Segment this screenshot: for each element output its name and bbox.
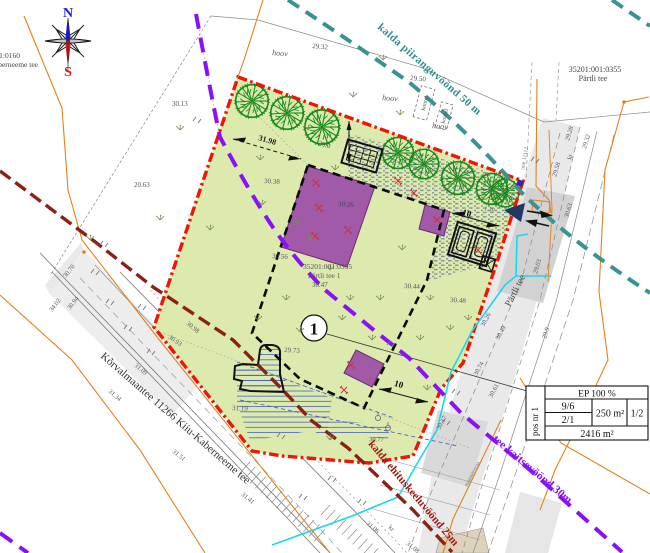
svg-text:29.32: 29.32	[312, 42, 329, 51]
svg-text:pos nr 1: pos nr 1	[530, 407, 540, 436]
svg-text:30.44: 30.44	[404, 282, 421, 291]
svg-text:250 m²: 250 m²	[596, 409, 624, 420]
svg-text:30.38: 30.38	[264, 177, 281, 186]
svg-text:2416 m²: 2416 m²	[580, 429, 613, 440]
svg-text:29.50: 29.50	[410, 74, 427, 83]
svg-text:hoov: hoov	[382, 93, 399, 103]
svg-text:29.73: 29.73	[284, 346, 301, 355]
svg-text:N: N	[63, 6, 73, 21]
svg-text:35201:001:0160: 35201:001:0160	[0, 51, 20, 60]
svg-text:S: S	[64, 65, 72, 80]
svg-text:Pärtli tee: Pärtli tee	[579, 74, 608, 83]
svg-text:20.63: 20.63	[134, 181, 150, 189]
svg-text:30.13: 30.13	[172, 100, 188, 108]
svg-text:hoov: hoov	[272, 48, 289, 58]
svg-text:30.48: 30.48	[450, 296, 467, 305]
svg-text:31.19: 31.19	[232, 404, 249, 413]
svg-text:35201:001:0355: 35201:001:0355	[303, 262, 352, 271]
svg-text:35201:001:0355: 35201:001:0355	[569, 65, 621, 74]
svg-text:EP 100 %: EP 100 %	[578, 390, 616, 400]
svg-text:2/1: 2/1	[562, 415, 575, 426]
svg-text:30.26: 30.26	[338, 200, 355, 209]
svg-text:9/6: 9/6	[562, 402, 575, 413]
svg-text:1/2: 1/2	[631, 409, 644, 420]
svg-text:Pärtli tee 1: Pärtli tee 1	[308, 271, 341, 280]
svg-text:30.56: 30.56	[272, 252, 289, 261]
svg-text:Kaberneeme tee: Kaberneeme tee	[0, 60, 39, 69]
svg-text:30.47: 30.47	[312, 281, 328, 289]
svg-text:1: 1	[310, 320, 319, 339]
svg-text:hoov: hoov	[432, 121, 449, 131]
